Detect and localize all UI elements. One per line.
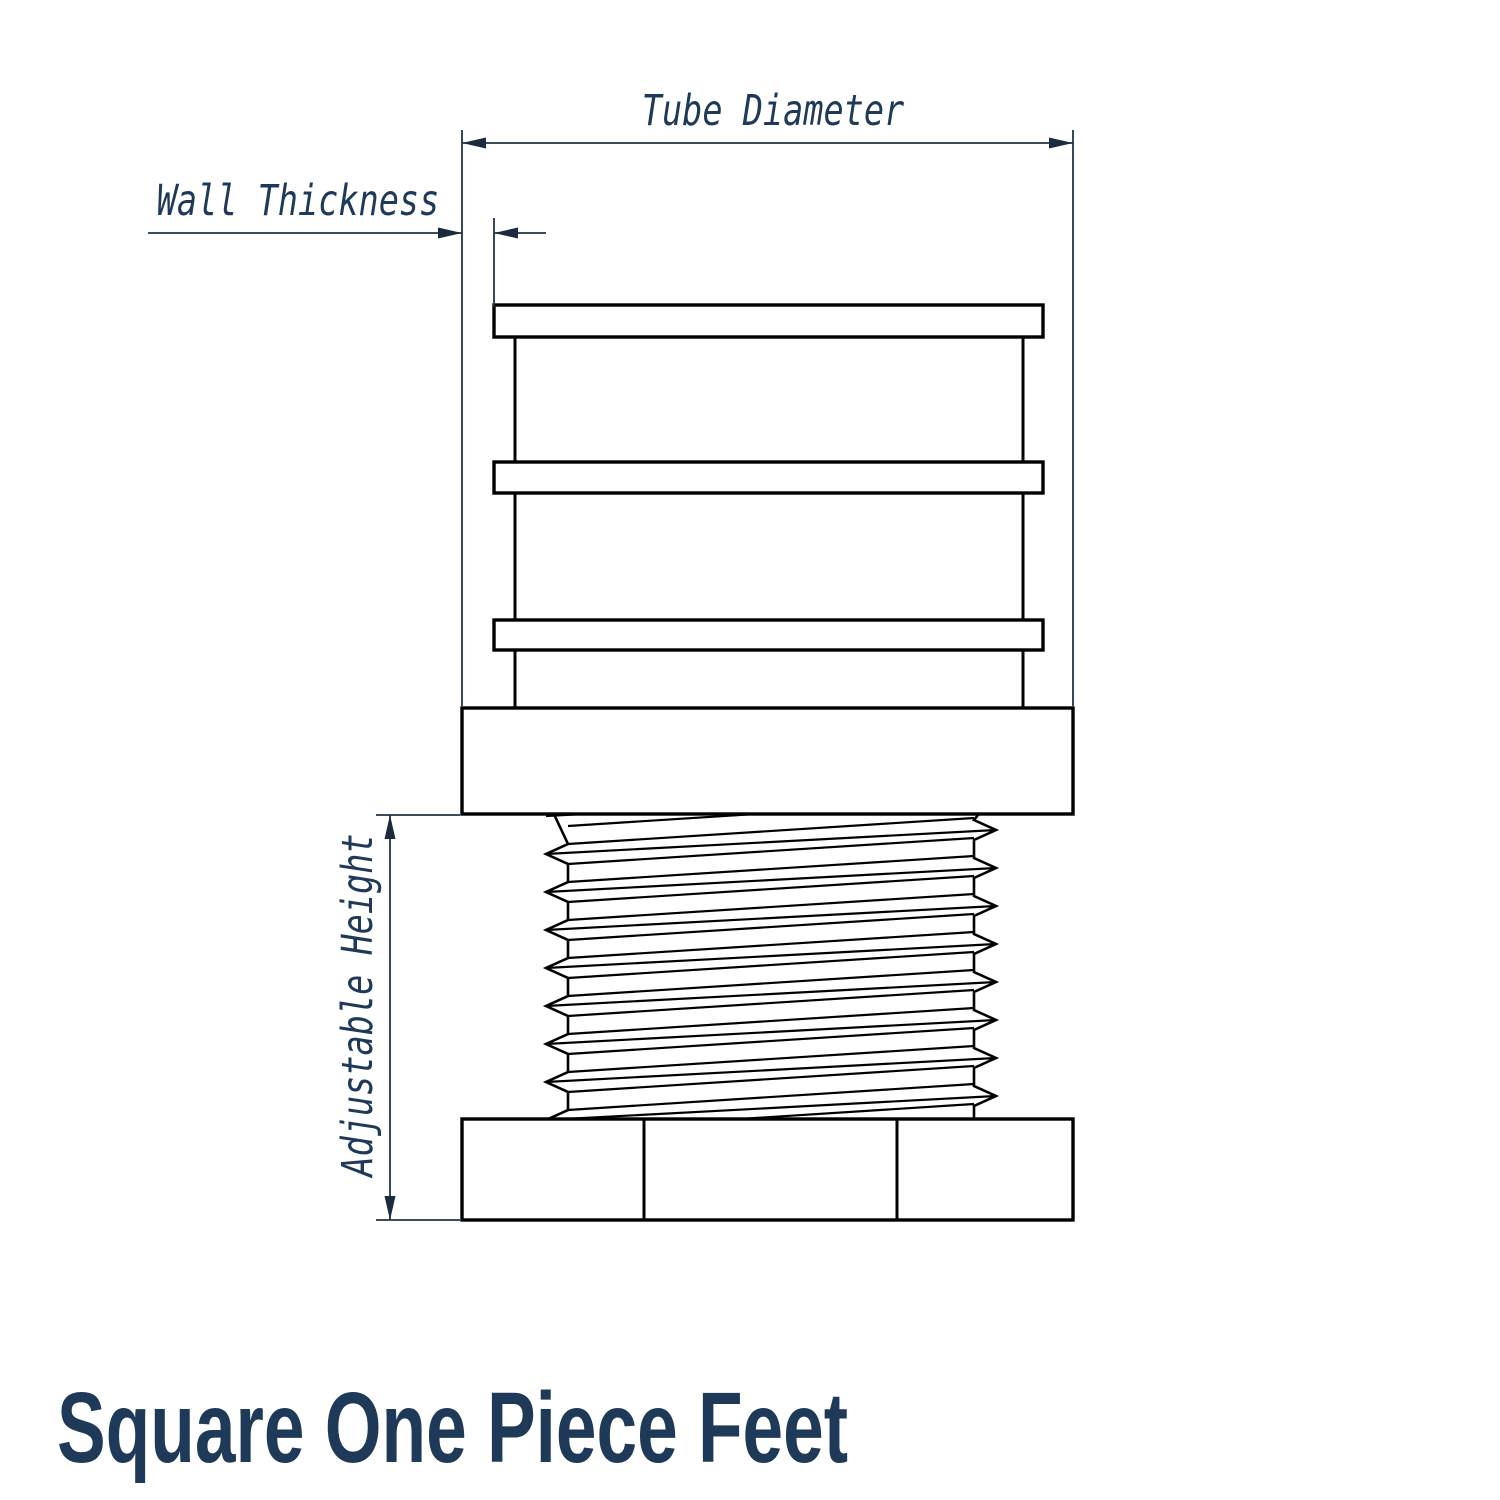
- dimensions: Tube Diameter Wall Thickness Adjustable …: [148, 86, 1073, 1220]
- drawing-canvas: Tube Diameter Wall Thickness Adjustable …: [0, 0, 1500, 1500]
- wall-thickness-label: Wall Thickness: [157, 176, 440, 226]
- arrowhead-left: [438, 228, 462, 239]
- dimension-wall-thickness: Wall Thickness: [148, 176, 546, 307]
- cap-rib-middle: [494, 462, 1043, 493]
- technical-drawing-svg: Tube Diameter Wall Thickness Adjustable …: [0, 0, 1500, 1500]
- arrowhead-down: [385, 1196, 396, 1220]
- thread-crest-lines: [546, 780, 996, 1168]
- page-title: Square One Piece Feet: [57, 1372, 848, 1484]
- thread-section: [546, 780, 996, 1168]
- collar: [462, 708, 1073, 814]
- adjustable-height-label: Adjustable Height: [333, 833, 383, 1178]
- arrowhead-up: [385, 815, 396, 839]
- arrowhead-right: [1049, 138, 1073, 149]
- cap-top-plate: [494, 305, 1043, 337]
- foot-part: [462, 305, 1073, 1220]
- dimension-tube-diameter: Tube Diameter: [462, 86, 1073, 706]
- tube-diameter-label: Tube Diameter: [642, 86, 904, 136]
- dimension-adjustable-height: Adjustable Height: [333, 815, 460, 1220]
- thread-profile-edges: [546, 810, 996, 1168]
- base-nut: [462, 1119, 1073, 1220]
- arrowhead-right: [494, 228, 518, 239]
- cap-rib-lower: [494, 620, 1043, 650]
- page: { "page": { "background": "#ffffff" }, "…: [0, 0, 1500, 1500]
- arrowhead-left: [462, 138, 486, 149]
